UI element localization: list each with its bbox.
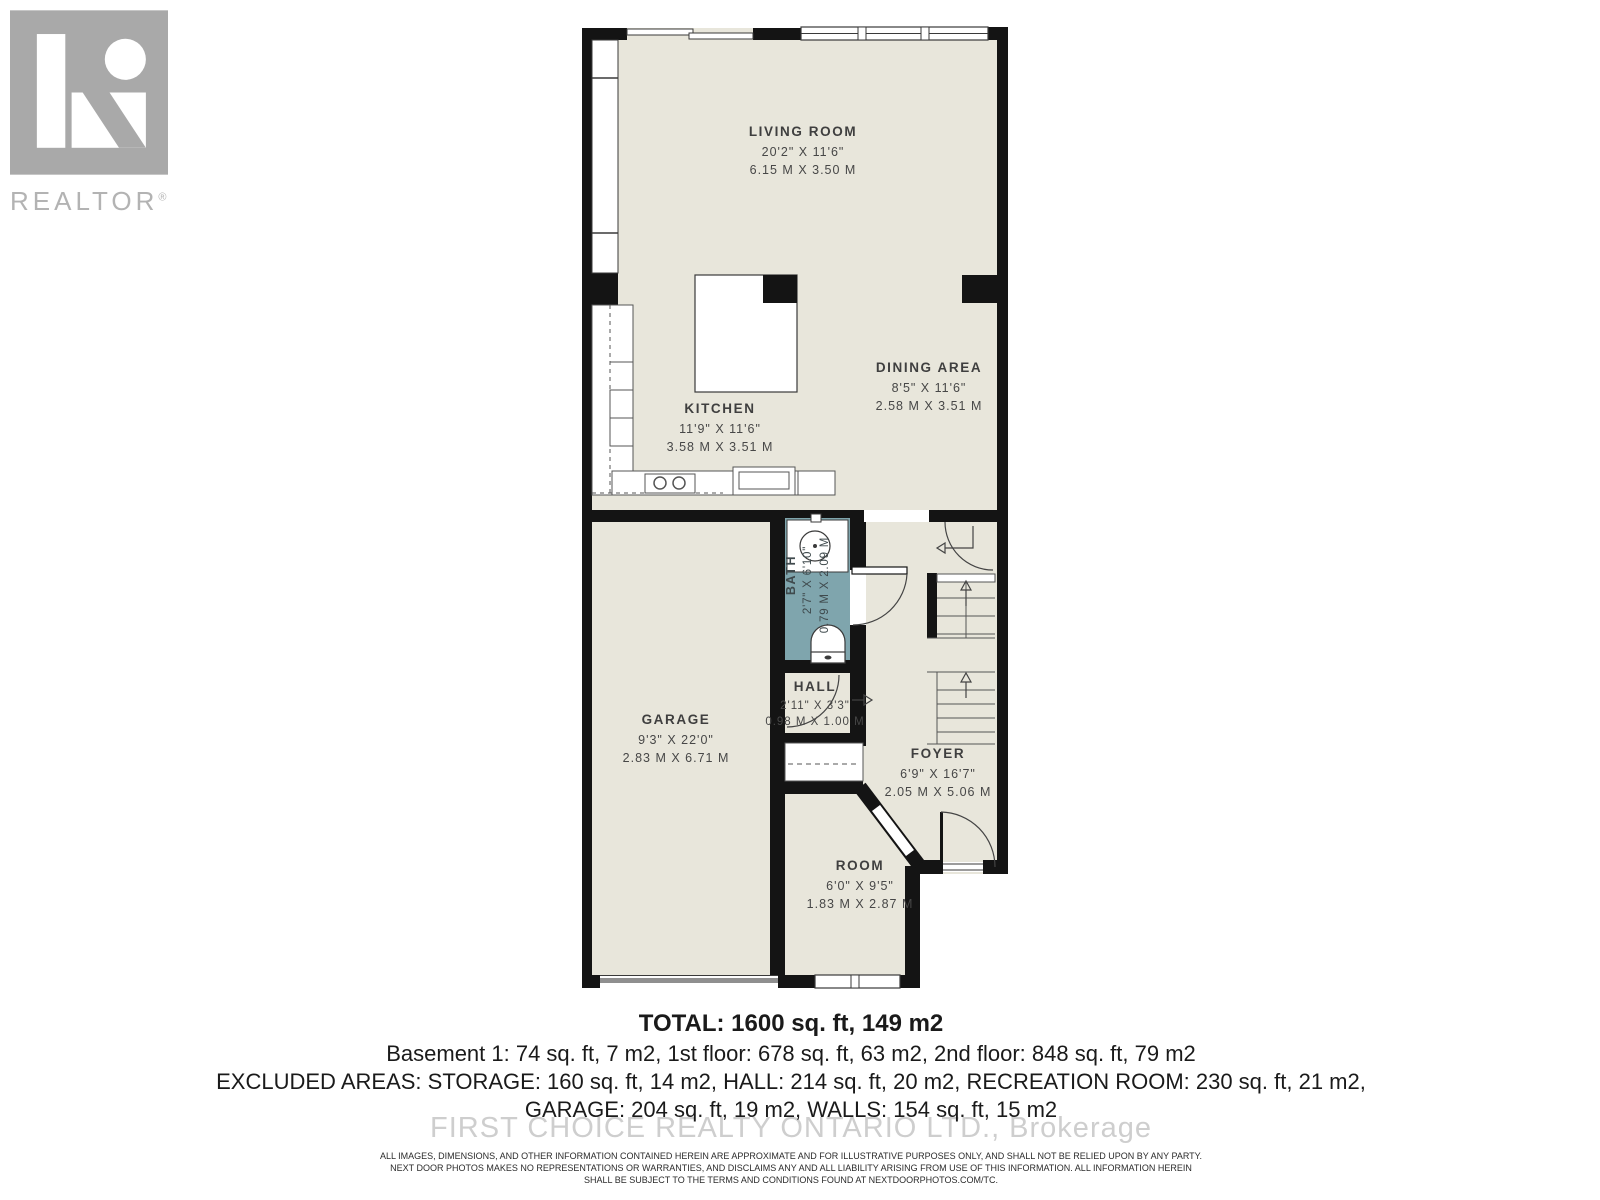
- kitchen-label: KITCHEN 11'9" X 11'6" 3.58 M X 3.51 M: [667, 401, 774, 454]
- floor-areas-line: Basement 1: 74 sq. ft, 7 m2, 1st floor: …: [0, 1041, 1582, 1067]
- realtor-logo-icon: [10, 10, 168, 175]
- registered-mark: ®: [158, 191, 166, 203]
- disclaimer-line-3: SHALL BE SUBJECT TO THE TERMS AND CONDIT…: [0, 1174, 1582, 1186]
- disclaimer-line-1: ALL IMAGES, DIMENSIONS, AND OTHER INFORM…: [0, 1150, 1582, 1162]
- bath-label: BATH: [784, 555, 798, 595]
- floor-plan-page: REALTOR®: [0, 0, 1600, 1200]
- bath-dim-metric: 0.79 M X 2.09 M: [819, 537, 831, 633]
- hall-closet: [785, 743, 863, 781]
- dining-area-label: DINING AREA 8'5" X 11'6" 2.58 M X 3.51 M: [876, 360, 983, 413]
- living-room-label: LIVING ROOM 20'2" X 11'6" 6.15 M X 3.50 …: [749, 124, 857, 177]
- disclaimer: ALL IMAGES, DIMENSIONS, AND OTHER INFORM…: [0, 1150, 1582, 1186]
- garage-label: GARAGE 9'3" X 22'0" 2.83 M X 6.71 M: [623, 712, 730, 765]
- garage-walls-line: GARAGE: 204 sq. ft, 19 m2, WALLS: 154 sq…: [0, 1097, 1582, 1123]
- realtor-logo: REALTOR®: [10, 10, 168, 217]
- disclaimer-line-2: NEXT DOOR PHOTOS MAKES NO REPRESENTATION…: [0, 1162, 1582, 1174]
- room-label: ROOM 6'0" X 9'5" 1.83 M X 2.87 M: [807, 858, 914, 911]
- hall-label: HALL 2'11" X 3'3" 0.98 M X 1.00 M: [765, 679, 864, 728]
- foyer-label: FOYER 6'9" X 16'7" 2.05 M X 5.06 M: [885, 746, 992, 799]
- excluded-areas-line: EXCLUDED AREAS: STORAGE: 160 sq. ft, 14 …: [0, 1069, 1582, 1095]
- total-area-line: TOTAL: 1600 sq. ft, 149 m2: [0, 1010, 1582, 1038]
- realtor-logo-text: REALTOR®: [10, 186, 168, 217]
- bath-dim-imperial: 2'7" X 6'10": [802, 546, 814, 614]
- floor-plan: LIVING ROOM 20'2" X 11'6" 6.15 M X 3.50 …: [573, 24, 1009, 992]
